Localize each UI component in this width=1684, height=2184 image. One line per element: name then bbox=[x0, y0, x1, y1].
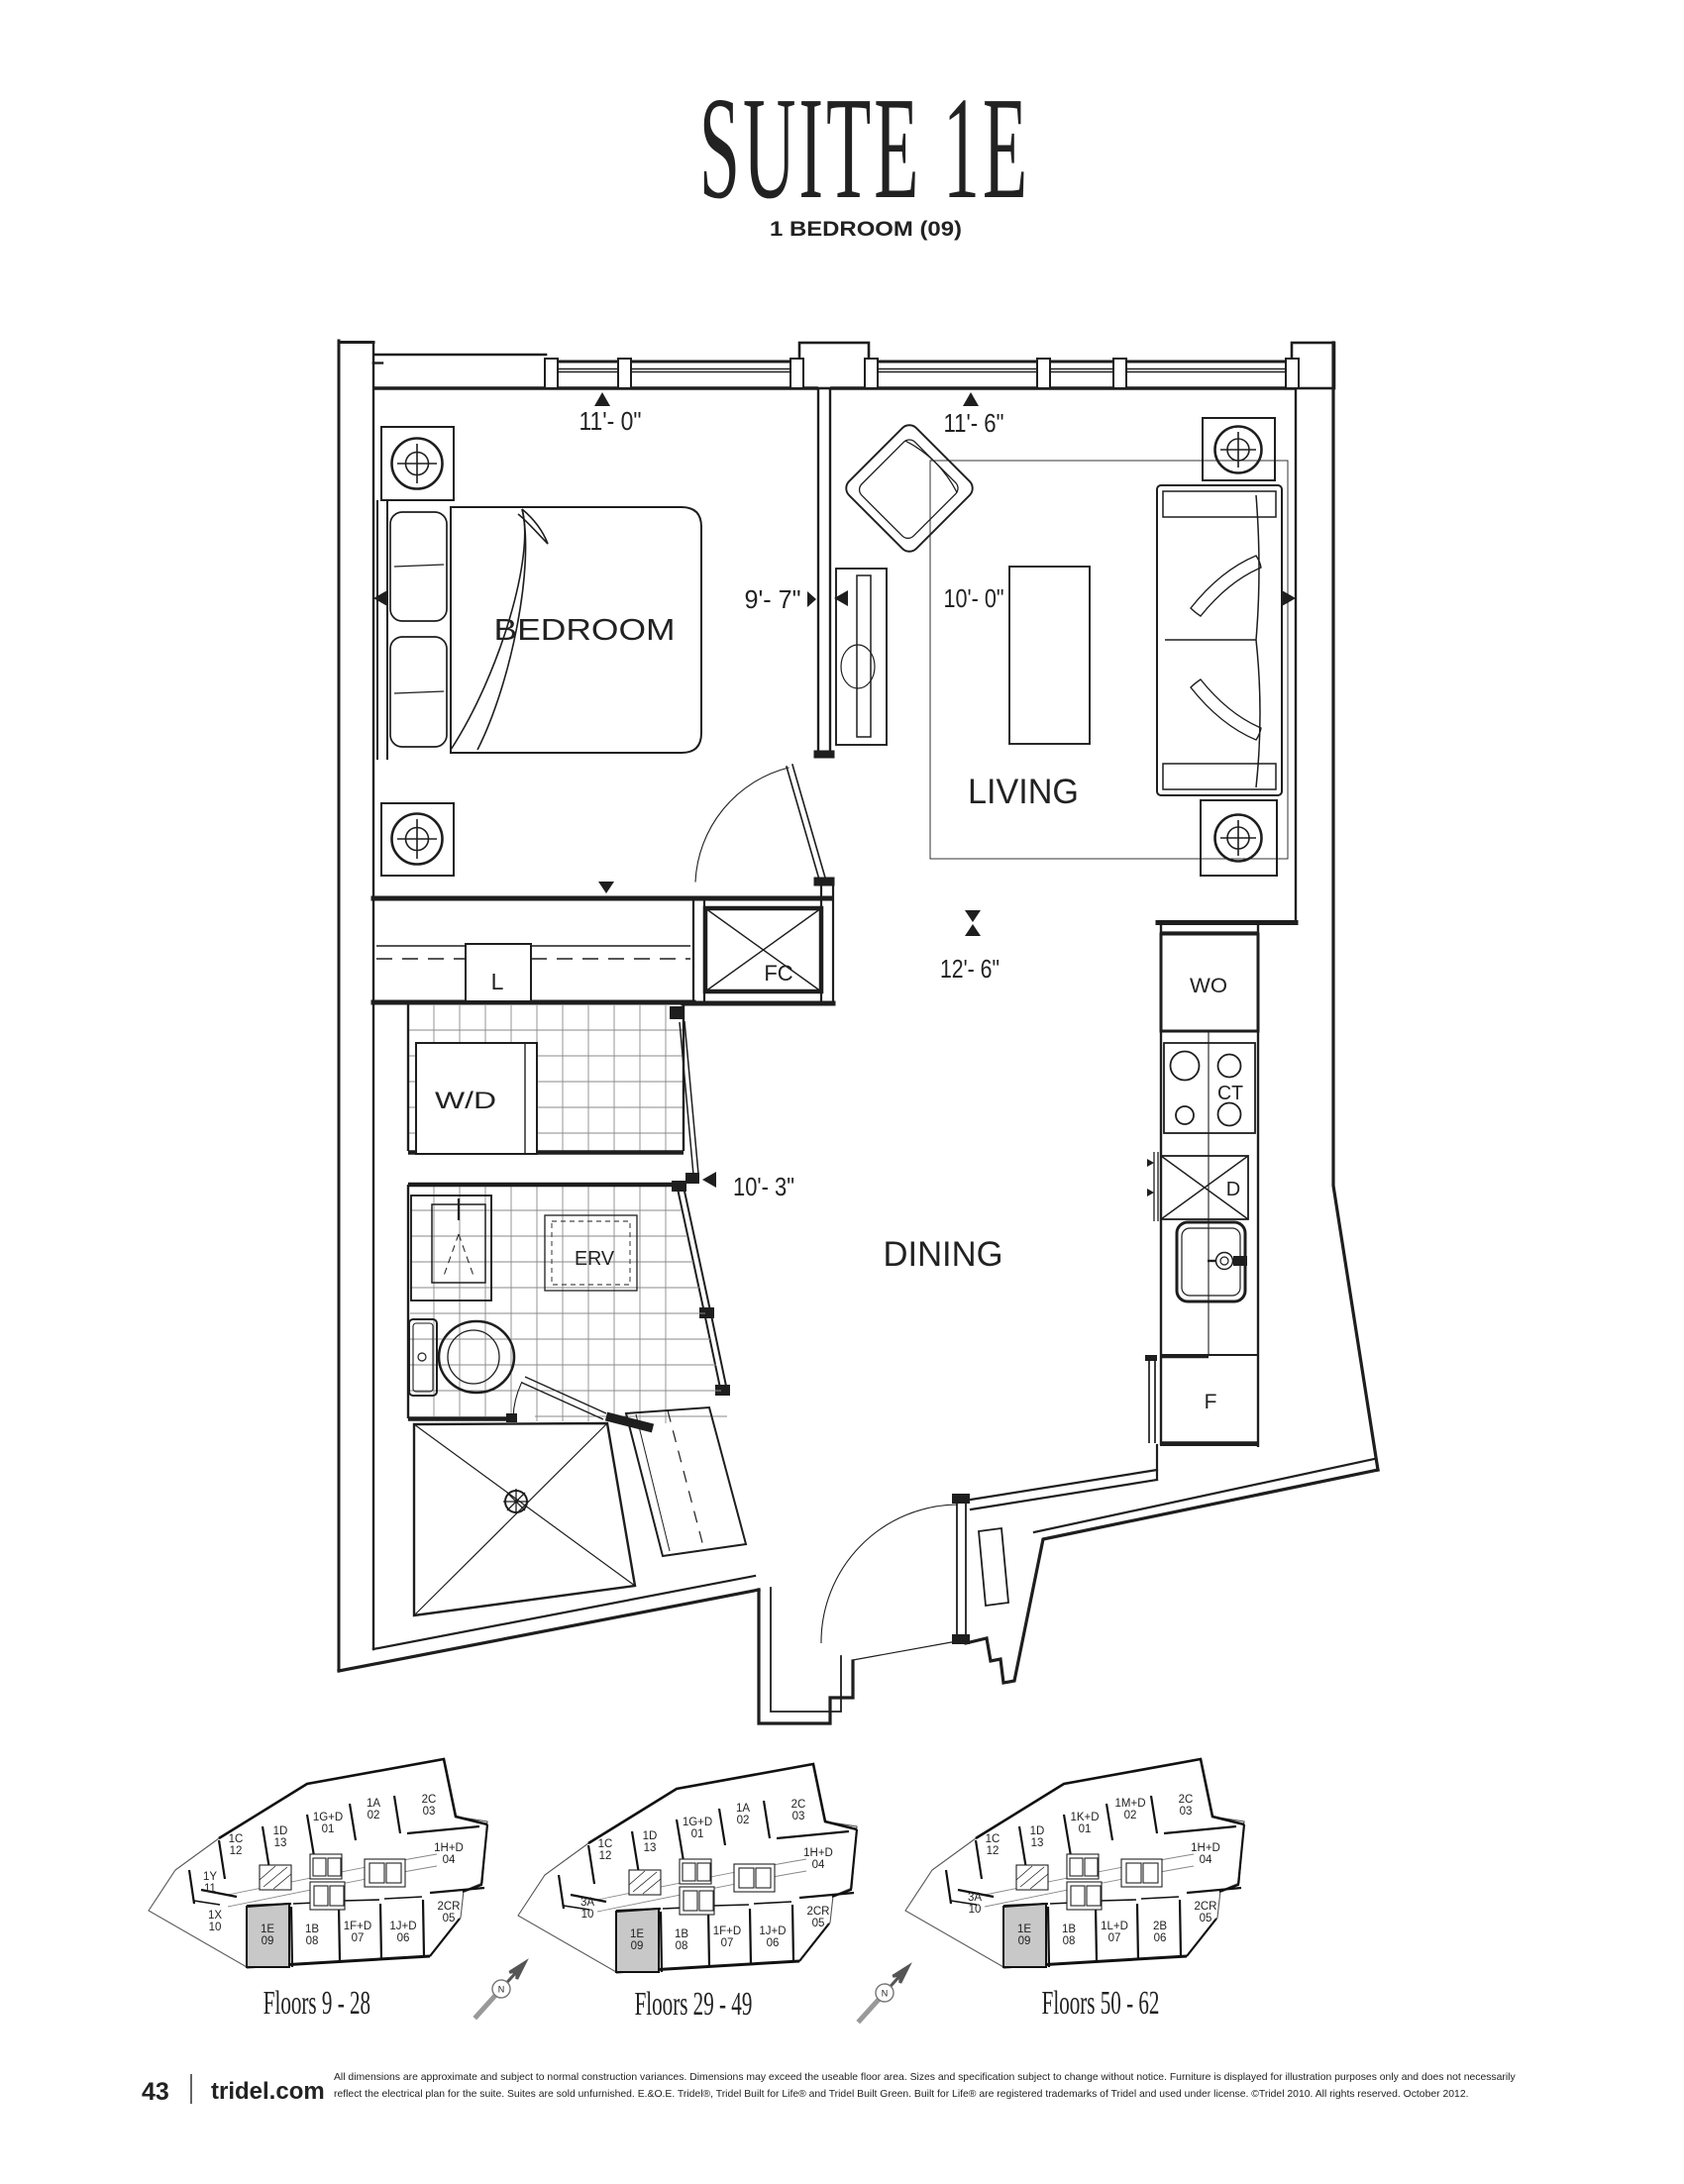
svg-text:9'- 7": 9'- 7" bbox=[745, 584, 801, 614]
svg-text:W/D: W/D bbox=[435, 1088, 496, 1114]
svg-text:1C12: 1C12 bbox=[986, 1833, 1000, 1857]
svg-text:10'- 3": 10'- 3" bbox=[733, 1172, 794, 1201]
svg-text:1B08: 1B08 bbox=[1062, 1924, 1076, 1947]
svg-text:43: 43 bbox=[142, 2078, 169, 2106]
svg-text:1D13: 1D13 bbox=[643, 1830, 658, 1854]
svg-text:3A10: 3A10 bbox=[968, 1892, 982, 1916]
svg-text:11'- 0": 11'- 0" bbox=[579, 406, 642, 436]
svg-text:1B08: 1B08 bbox=[305, 1924, 319, 1947]
svg-text:Floors 50 - 62: Floors 50 - 62 bbox=[1042, 1985, 1160, 2022]
svg-text:SUITE 1E: SUITE 1E bbox=[699, 68, 1030, 230]
svg-text:1E09: 1E09 bbox=[630, 1928, 644, 1952]
svg-text:CT: CT bbox=[1217, 1083, 1243, 1104]
svg-text:1D13: 1D13 bbox=[1030, 1825, 1045, 1849]
svg-text:All dimensions are approximate: All dimensions are approximate and subje… bbox=[334, 2072, 1516, 2083]
svg-text:N: N bbox=[882, 1989, 889, 1999]
svg-text:Floors 9 - 28: Floors 9 - 28 bbox=[263, 1985, 370, 2022]
svg-text:DINING: DINING bbox=[884, 1235, 1003, 1274]
svg-text:2C03: 2C03 bbox=[422, 1794, 437, 1818]
svg-text:Floors 29 - 49: Floors 29 - 49 bbox=[635, 1986, 753, 2023]
svg-text:WO: WO bbox=[1190, 975, 1227, 997]
svg-text:1C12: 1C12 bbox=[598, 1838, 613, 1862]
svg-text:3A10: 3A10 bbox=[580, 1897, 594, 1921]
svg-text:tridel.com: tridel.com bbox=[211, 2078, 325, 2105]
svg-text:2B06: 2B06 bbox=[1153, 1921, 1167, 1944]
svg-text:LIVING: LIVING bbox=[968, 773, 1079, 811]
svg-text:ERV: ERV bbox=[575, 1248, 615, 1270]
svg-text:L: L bbox=[491, 969, 504, 994]
svg-text:1B08: 1B08 bbox=[675, 1928, 688, 1952]
svg-text:FC: FC bbox=[764, 961, 792, 986]
svg-text:1C12: 1C12 bbox=[229, 1833, 244, 1857]
svg-text:2C03: 2C03 bbox=[791, 1799, 806, 1822]
svg-text:D: D bbox=[1226, 1179, 1240, 1200]
svg-text:1X10: 1X10 bbox=[208, 1910, 222, 1933]
svg-text:10'- 0": 10'- 0" bbox=[944, 583, 1004, 613]
svg-text:2C03: 2C03 bbox=[1179, 1794, 1194, 1818]
svg-text:1E09: 1E09 bbox=[1017, 1924, 1031, 1947]
svg-text:12'- 6": 12'- 6" bbox=[940, 954, 1000, 984]
svg-text:1 BEDROOM (09): 1 BEDROOM (09) bbox=[770, 218, 962, 241]
svg-text:BEDROOM: BEDROOM bbox=[494, 612, 676, 647]
svg-text:1Y11: 1Y11 bbox=[203, 1871, 217, 1895]
svg-text:1D13: 1D13 bbox=[273, 1825, 288, 1849]
svg-text:1E09: 1E09 bbox=[261, 1924, 274, 1947]
svg-text:1A02: 1A02 bbox=[367, 1798, 380, 1821]
svg-text:reflect the electrical plan fo: reflect the electrical plan for the suit… bbox=[334, 2089, 1468, 2100]
svg-text:N: N bbox=[498, 1985, 505, 1995]
svg-text:F: F bbox=[1205, 1391, 1217, 1413]
svg-text:11'- 6": 11'- 6" bbox=[944, 408, 1004, 438]
svg-text:1A02: 1A02 bbox=[736, 1803, 750, 1826]
